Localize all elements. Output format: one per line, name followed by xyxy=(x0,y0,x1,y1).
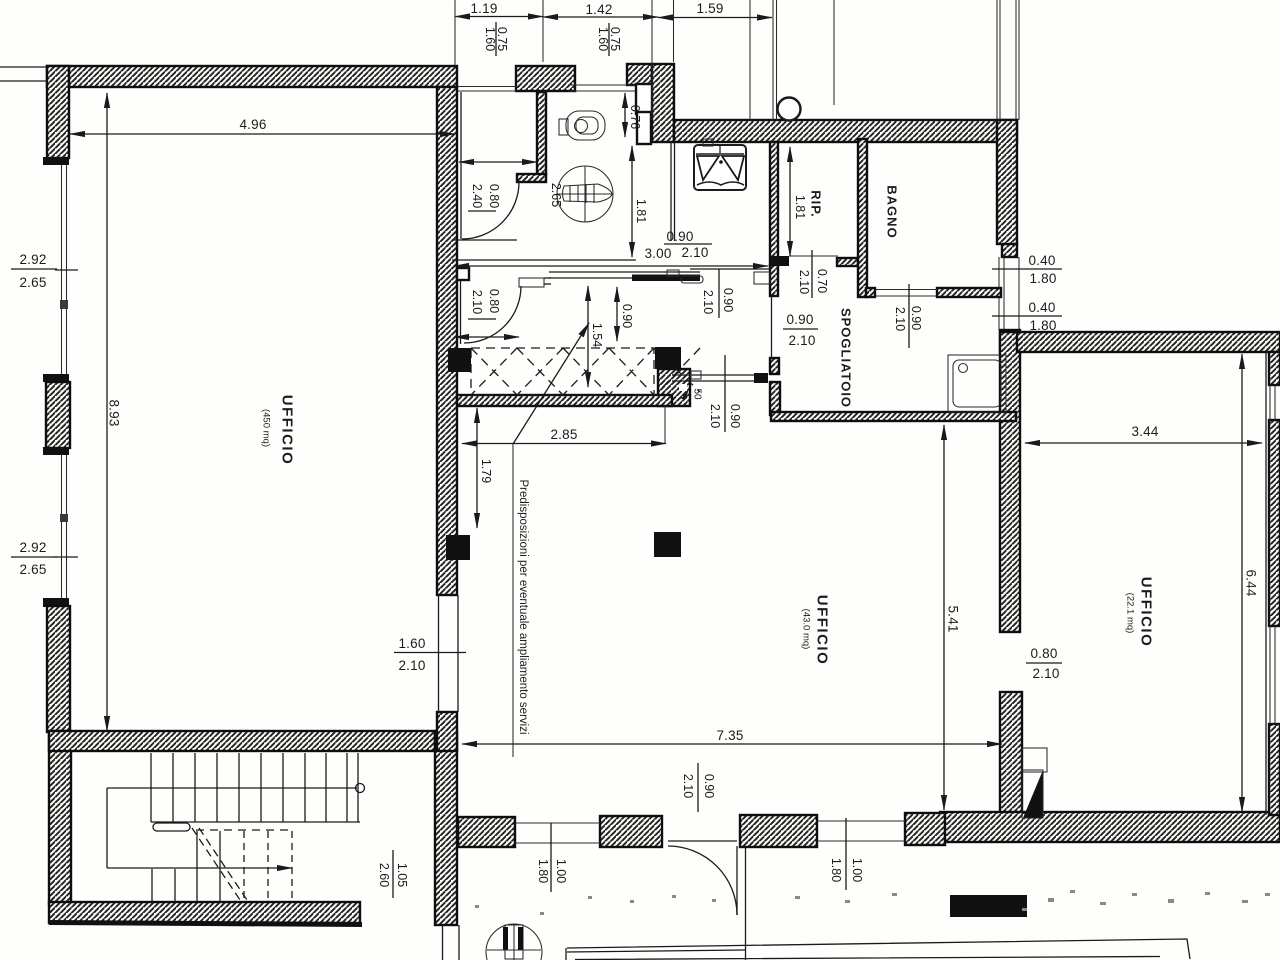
svg-text:1.19: 1.19 xyxy=(470,1,497,16)
svg-text:1.05: 1.05 xyxy=(395,863,409,887)
svg-text:0.80: 0.80 xyxy=(487,289,501,313)
svg-text:(43.0 mq): (43.0 mq) xyxy=(801,609,812,650)
svg-text:2.92: 2.92 xyxy=(19,252,46,267)
svg-text:1.59: 1.59 xyxy=(696,1,723,16)
svg-text:UFFICIO: UFFICIO xyxy=(814,595,831,666)
svg-text:0.80: 0.80 xyxy=(1030,646,1057,661)
svg-text:5.41: 5.41 xyxy=(946,605,961,632)
svg-text:0.90: 0.90 xyxy=(721,288,735,312)
svg-text:2.10: 2.10 xyxy=(708,404,722,428)
svg-text:2.10: 2.10 xyxy=(788,333,815,348)
svg-text:1.80: 1.80 xyxy=(829,858,843,882)
svg-text:2.10: 2.10 xyxy=(398,658,425,673)
svg-text:2.85: 2.85 xyxy=(550,427,577,442)
svg-text:UFFICIO: UFFICIO xyxy=(279,395,296,466)
svg-text:BAGNO: BAGNO xyxy=(885,185,900,238)
svg-text:2.10: 2.10 xyxy=(681,774,695,798)
svg-text:2.92: 2.92 xyxy=(19,540,46,555)
svg-text:2.10: 2.10 xyxy=(470,290,484,314)
svg-text:1.80: 1.80 xyxy=(536,859,550,883)
svg-text:1.81: 1.81 xyxy=(634,199,648,223)
svg-text:UFFICIO: UFFICIO xyxy=(1138,577,1155,648)
svg-text:1.42: 1.42 xyxy=(585,2,612,17)
svg-text:(450 mq): (450 mq) xyxy=(261,409,272,447)
svg-text:2.65: 2.65 xyxy=(19,562,46,577)
svg-text:3.44: 3.44 xyxy=(1131,424,1158,439)
svg-text:2.10: 2.10 xyxy=(797,270,811,294)
svg-text:50: 50 xyxy=(692,388,703,400)
svg-text:2.10: 2.10 xyxy=(893,307,907,331)
svg-text:SPOGLIATOIO: SPOGLIATOIO xyxy=(839,308,854,408)
svg-text:8.93: 8.93 xyxy=(107,399,122,426)
svg-text:1.60: 1.60 xyxy=(483,27,497,51)
svg-text:2.65: 2.65 xyxy=(549,183,563,207)
svg-text:2.10: 2.10 xyxy=(1032,666,1059,681)
svg-text:0.90: 0.90 xyxy=(702,774,716,798)
svg-text:4.96: 4.96 xyxy=(239,117,266,132)
svg-text:1.79: 1.79 xyxy=(479,459,493,483)
svg-text:7.35: 7.35 xyxy=(716,728,743,743)
svg-text:0.80: 0.80 xyxy=(487,184,501,208)
svg-text:1.00: 1.00 xyxy=(850,858,864,882)
svg-text:0.70: 0.70 xyxy=(815,269,829,293)
svg-text:0.90: 0.90 xyxy=(620,304,634,328)
svg-text:0.90: 0.90 xyxy=(666,229,693,244)
svg-text:2.10: 2.10 xyxy=(681,245,708,260)
svg-text:1.00: 1.00 xyxy=(554,859,568,883)
svg-text:0.90: 0.90 xyxy=(728,404,742,428)
svg-text:1.54: 1.54 xyxy=(590,323,604,347)
svg-text:0.90: 0.90 xyxy=(909,306,923,330)
svg-text:3.00: 3.00 xyxy=(644,246,671,261)
svg-text:1.80: 1.80 xyxy=(1029,318,1056,333)
svg-text:0.76: 0.76 xyxy=(628,105,642,129)
svg-text:Predisposizioni per eventuale: Predisposizioni per eventuale ampliament… xyxy=(517,479,529,734)
svg-text:2.10: 2.10 xyxy=(701,290,715,314)
svg-text:6.44: 6.44 xyxy=(1244,569,1259,596)
svg-text:1.60: 1.60 xyxy=(596,27,610,51)
svg-text:0.40: 0.40 xyxy=(1028,300,1055,315)
svg-text:0.40: 0.40 xyxy=(1028,253,1055,268)
svg-text:0.90: 0.90 xyxy=(786,312,813,327)
svg-text:1.81: 1.81 xyxy=(793,195,807,219)
svg-text:2.60: 2.60 xyxy=(377,863,391,887)
svg-text:2.65: 2.65 xyxy=(19,275,46,290)
svg-text:1.60: 1.60 xyxy=(398,636,425,651)
svg-text:2.40: 2.40 xyxy=(470,184,484,208)
svg-text:(22.1 mq): (22.1 mq) xyxy=(1125,593,1136,634)
svg-text:RIP.: RIP. xyxy=(809,190,824,218)
svg-text:1.80: 1.80 xyxy=(1029,271,1056,286)
